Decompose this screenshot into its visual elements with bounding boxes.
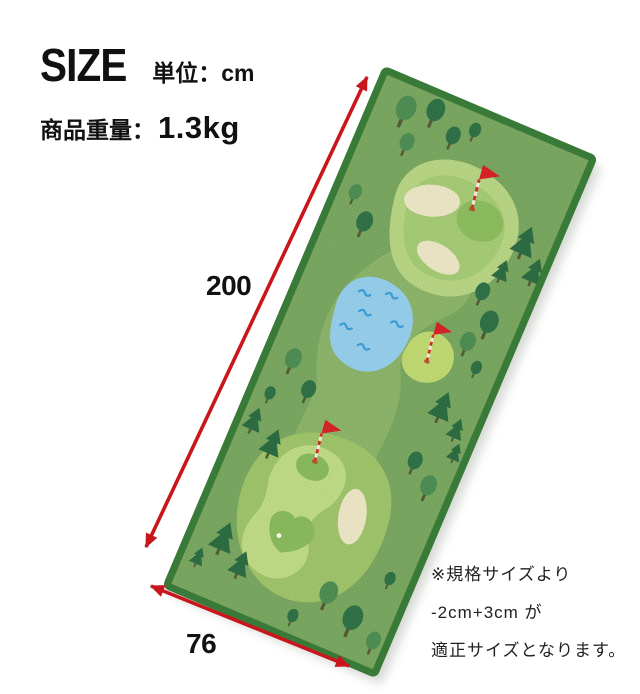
note-line-2: -2cm+3cm が (431, 594, 626, 632)
width-dimension-label: 76 (186, 628, 216, 660)
note-line-3: 適正サイズとなります。 (431, 632, 626, 670)
size-header: SIZE 単位：cm (40, 38, 255, 92)
unit-label: 単位：cm (152, 54, 254, 88)
size-note: ※規格サイズより -2cm+3cm が 適正サイズとなります。 (431, 556, 626, 670)
weight-label: 商品重量： (40, 111, 155, 145)
length-dimension-label: 200 (206, 270, 251, 302)
size-title: SIZE (40, 38, 126, 92)
weight-value: 1.3kg (158, 110, 240, 146)
product-size-diagram: SIZE 単位：cm 商品重量： 1.3kg 200 76 ※規格サイズより -… (0, 0, 640, 694)
note-line-1: ※規格サイズより (431, 556, 626, 594)
weight-row: 商品重量： 1.3kg (40, 110, 240, 146)
